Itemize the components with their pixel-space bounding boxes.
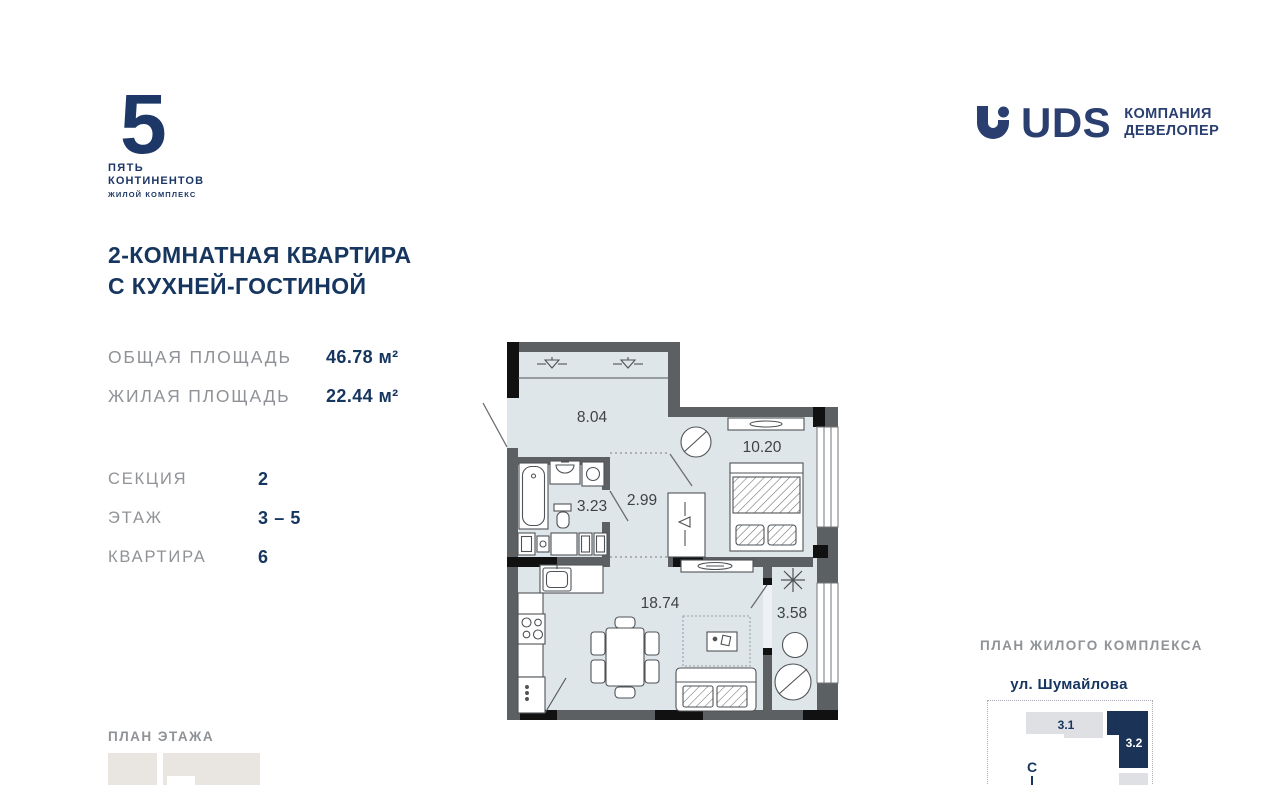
tv-icon: [698, 563, 732, 570]
info-row-section: СЕКЦИЯ 2: [108, 460, 301, 499]
info-value: 3 – 5: [258, 508, 301, 529]
page-title: 2-КОМНАТНАЯ КВАРТИРА С КУХНЕЙ-ГОСТИНОЙ: [108, 240, 411, 302]
info-row-apartment: КВАРТИРА 6: [108, 538, 301, 577]
info-label: ЭТАЖ: [108, 509, 258, 528]
stat-row-total: ОБЩАЯ ПЛОЩАДЬ 46.78 м²: [108, 338, 399, 377]
info-value: 2: [258, 469, 269, 490]
balcony-window: [817, 583, 838, 683]
chair: [645, 660, 659, 683]
armchair: [681, 427, 711, 457]
pillow: [768, 525, 796, 545]
logo-text-line1: ПЯТЬ: [108, 162, 144, 174]
room-area-corridor: 2.99: [627, 492, 657, 509]
info-label: КВАРТИРА: [108, 548, 258, 567]
info-label: СЕКЦИЯ: [108, 470, 258, 489]
room-area-kitchen-living: 18.74: [641, 595, 680, 612]
logo-text-line2: КОНТИНЕНТОВ: [108, 175, 204, 187]
balcony-chair: [775, 664, 811, 700]
logo-text-line3: ЖИЛОЙ КОМПЛЕКС: [108, 190, 196, 199]
page: 5 ПЯТЬ КОНТИНЕНТОВ ЖИЛОЙ КОМПЛЕКС UDS КО…: [0, 0, 1280, 785]
dresser: [728, 418, 804, 430]
building-partial: [1119, 773, 1148, 785]
floor-plan-fragment-block: [108, 753, 157, 785]
uds-name: UDS: [1021, 103, 1111, 143]
bedroom-window: [817, 427, 838, 527]
title-line1: 2-КОМНАТНАЯ КВАРТИРА: [108, 240, 411, 271]
floor-plan-section-label: ПЛАН ЭТАЖА: [108, 729, 214, 744]
dining-table: [606, 628, 644, 686]
pillow: [736, 525, 764, 545]
developer-sub-line2: ДЕВЕЛОПЕР: [1124, 123, 1219, 140]
building-3-1-label: 3.1: [1058, 718, 1075, 732]
bathroom-sink-icon: [550, 461, 580, 484]
compass-north-label: С: [1027, 759, 1037, 775]
complex-logo: 5 ПЯТЬ КОНТИНЕНТОВ ЖИЛОЙ КОМПЛЕКС: [100, 96, 220, 206]
stool: [615, 617, 635, 628]
building-3-2-label: 3.2: [1126, 736, 1143, 750]
stool: [615, 687, 635, 698]
uds-mark-icon: [974, 103, 1012, 143]
street-name: ул. Шумайлова: [985, 676, 1153, 693]
kitchen-cabinet: [518, 677, 545, 713]
apartment-floor-plan: 8.04 10.20 3.23 2.99 18.74 3.58: [470, 330, 870, 730]
balcony-door-opening: [763, 585, 772, 648]
kitchen-sink-icon: [543, 565, 571, 591]
bed: [730, 463, 803, 551]
area-stats: ОБЩАЯ ПЛОЩАДЬ 46.78 м² ЖИЛАЯ ПЛОЩАДЬ 22.…: [108, 338, 399, 416]
developer-logo: UDS КОМПАНИЯ ДЕВЕЛОПЕР: [974, 103, 1219, 143]
chair: [591, 632, 605, 655]
washing-machine-icon: [582, 462, 604, 486]
stat-value: 22.44 м²: [326, 386, 399, 407]
room-area-bathroom: 3.23: [577, 498, 607, 515]
logo-5-icon: 5: [120, 82, 167, 166]
sofa: [676, 668, 756, 711]
room-area-bedroom: 10.20: [743, 439, 782, 456]
chair: [591, 660, 605, 683]
developer-sub-line1: КОМПАНИЯ: [1124, 106, 1219, 123]
chair: [645, 632, 659, 655]
entrance-door-swing: [483, 403, 507, 447]
title-line2: С КУХНЕЙ-ГОСТИНОЙ: [108, 271, 411, 302]
bathtub-icon: [519, 463, 548, 529]
info-value: 6: [258, 547, 269, 568]
room-area-hallway: 8.04: [577, 409, 608, 426]
room-area-balcony: 3.58: [777, 605, 807, 622]
wardrobe: [668, 493, 705, 557]
stove-icon: [518, 614, 545, 644]
bathroom-cabinets: [518, 533, 607, 555]
apartment-info: СЕКЦИЯ 2 ЭТАЖ 3 – 5 КВАРТИРА 6: [108, 460, 301, 577]
stat-label: ОБЩАЯ ПЛОЩАДЬ: [108, 347, 326, 368]
coffee-table: [707, 632, 737, 651]
stat-row-living: ЖИЛАЯ ПЛОЩАДЬ 22.44 м²: [108, 377, 399, 416]
balcony-table: [783, 633, 808, 658]
stat-value: 46.78 м²: [326, 347, 399, 368]
info-row-floor: ЭТАЖ 3 – 5: [108, 499, 301, 538]
floor-plan-fragment-notch: [167, 776, 195, 785]
plant-icon: [781, 568, 805, 592]
stat-label: ЖИЛАЯ ПЛОЩАДЬ: [108, 386, 326, 407]
complex-plan-label: ПЛАН ЖИЛОГО КОМПЛЕКСА: [980, 638, 1203, 653]
complex-plan-map: 3.1 3.2 С: [987, 700, 1152, 785]
